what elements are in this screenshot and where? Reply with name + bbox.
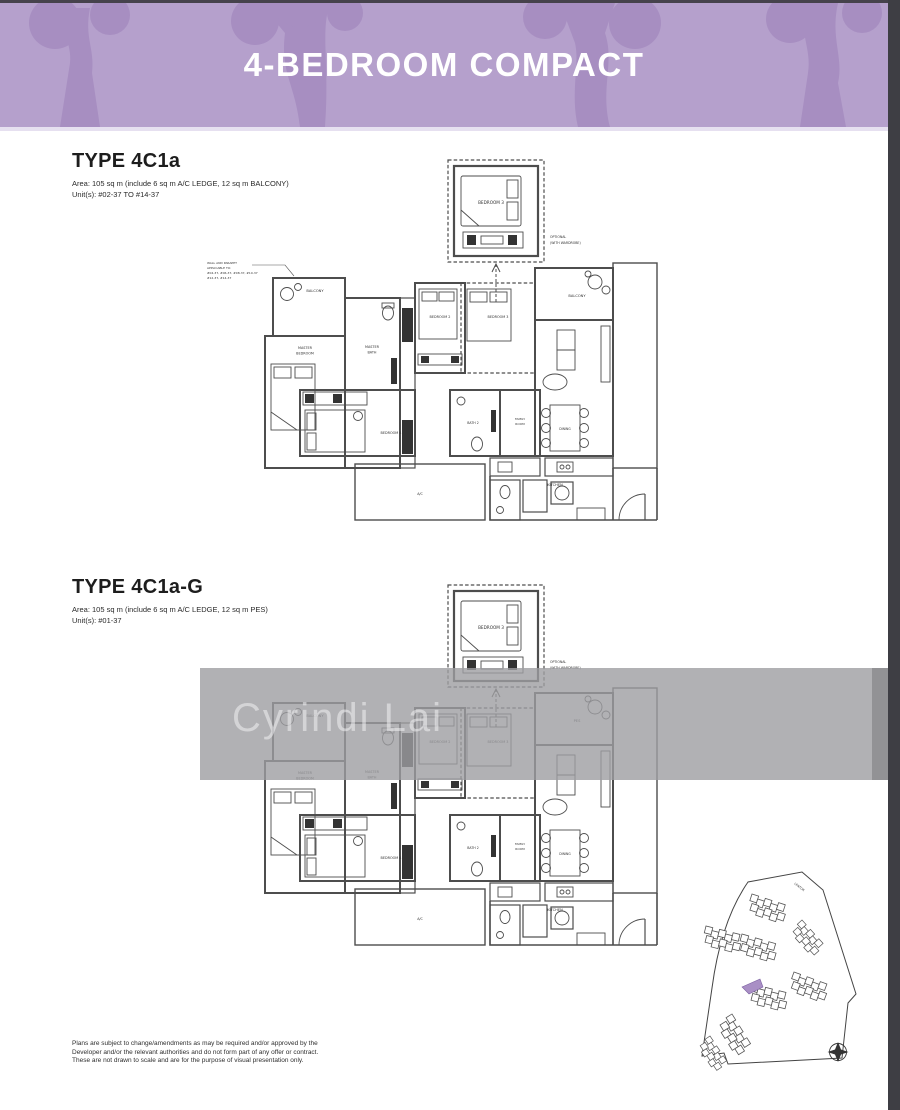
room-label-balcony: BALCONY: [306, 289, 324, 293]
room-label-bedroom3: BEDROOM 3: [488, 315, 509, 319]
room-label-bedroom4: BEDROOM 4: [381, 431, 402, 435]
room-label-master-bath-1: MASTER: [365, 345, 380, 349]
wall-note-line1: WALL AND PARAPET: [207, 261, 237, 265]
room-label-bedroom2: BEDROOM 2: [430, 315, 451, 319]
room-label-dining: DINING: [559, 852, 571, 856]
room-label-family-2: ROOM: [515, 422, 525, 426]
room-label-bath2: BATH 2: [467, 846, 479, 850]
page-title: 4-BEDROOM COMPACT: [0, 3, 888, 127]
room-label-optional-bedroom3: BEDROOM 3: [478, 200, 504, 205]
floorplan-brochure-page: 4-BEDROOM COMPACT TYPE 4C1a Area: 105 sq…: [0, 0, 900, 1110]
room-label-dining: DINING: [559, 427, 571, 431]
watermark-band-dark-tail: [872, 668, 888, 780]
room-label-bedroom4: BEDROOM 4: [381, 856, 402, 860]
room-label-master-bath-2: BATH: [367, 351, 376, 355]
room-label-kitchen: KITCHEN: [547, 908, 563, 912]
room-label-ac: A/C: [417, 492, 423, 496]
section-banner: 4-BEDROOM COMPACT: [0, 3, 888, 127]
disclaimer-line1: Plans are subject to change/amendments a…: [72, 1040, 342, 1049]
viewer-scroll-edge: [888, 0, 900, 1110]
room-label-master-bedroom-1: MASTER: [298, 346, 313, 350]
room-label-optional-bedroom3: BEDROOM 3: [478, 625, 504, 630]
room-label-family-2: ROOM: [515, 847, 525, 851]
room-label-outdoor: BALCONY: [568, 294, 586, 298]
wall-note-line4: #12-37, #14-37: [207, 276, 231, 280]
room-label-master-bedroom-2: BEDROOM: [296, 352, 314, 356]
room-label-ac: A/C: [417, 917, 423, 921]
wall-note-line2: APPLICABLE TO:: [207, 266, 231, 270]
room-label-bath2: BATH 2: [467, 421, 479, 425]
watermark-band: Cyrindi Lai: [200, 668, 888, 780]
site-key-plan: LENTOR: [690, 868, 876, 1096]
watermark-text: Cyrindi Lai: [232, 696, 443, 741]
disclaimer-text: Plans are subject to change/amendments a…: [72, 1040, 342, 1066]
optional-note-line1: OPTIONAL: [550, 235, 566, 239]
disclaimer-line3: These are not drawn to scale and are for…: [72, 1057, 342, 1066]
optional-note-line2: (WITH WARDROBE): [550, 241, 581, 245]
optional-note-line1: OPTIONAL: [550, 660, 566, 664]
room-label-family-1: FAMILY: [515, 417, 525, 421]
disclaimer-line2: Developer and/or the relevant authoritie…: [72, 1049, 342, 1058]
floorplan-type-4c1a: WALL AND PARAPET APPLICABLE TO: #04-37, …: [205, 158, 675, 558]
banner-underline: [0, 127, 888, 131]
room-label-family-1: FAMILY: [515, 842, 525, 846]
wall-note-line3: #04-37, #06-37, #08-37, #10-37: [207, 271, 258, 275]
room-label-kitchen: KITCHEN: [547, 483, 563, 487]
floorplan-type-4c1a-g: BEDROOM 3 OPTIONAL (WITH WARDROBE) BALCO…: [205, 583, 675, 983]
